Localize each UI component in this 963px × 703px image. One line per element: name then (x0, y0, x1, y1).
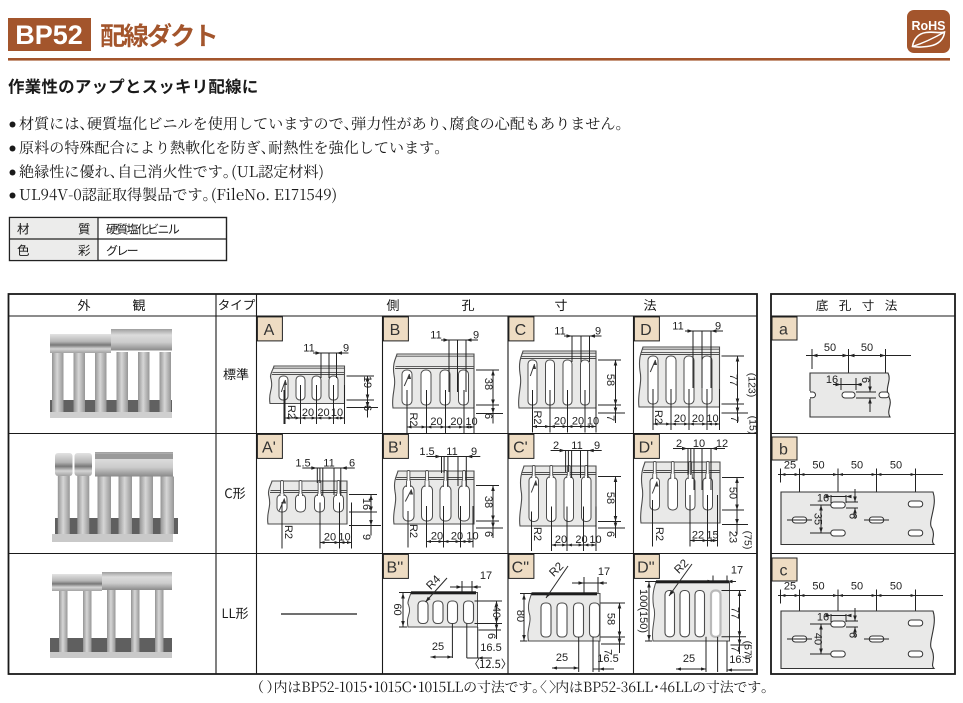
svg-text:6: 6 (485, 633, 497, 639)
svg-text:16.5: 16.5 (597, 653, 618, 665)
svg-text:B: B (390, 322, 401, 339)
svg-text:16: 16 (817, 612, 829, 624)
svg-text:a: a (779, 322, 788, 339)
svg-text:6: 6 (482, 531, 494, 537)
svg-text:50: 50 (861, 342, 873, 354)
svg-text:19: 19 (361, 376, 373, 388)
svg-text:B': B' (388, 439, 402, 456)
svg-text:17: 17 (731, 565, 743, 577)
svg-text:6: 6 (847, 513, 859, 519)
svg-text:25: 25 (556, 652, 568, 664)
svg-text:B'': B'' (387, 559, 404, 576)
svg-text:50: 50 (812, 581, 824, 593)
svg-text:40: 40 (812, 633, 824, 645)
svg-text:7: 7 (729, 646, 741, 652)
svg-text:11: 11 (303, 343, 314, 355)
svg-text:50: 50 (890, 460, 902, 472)
svg-text:C'': C'' (512, 559, 530, 576)
svg-text:6: 6 (482, 413, 494, 419)
svg-text:BP52: BP52 (15, 20, 83, 50)
svg-text:77: 77 (727, 374, 739, 386)
svg-text:7: 7 (728, 416, 740, 422)
svg-text:50: 50 (824, 342, 836, 354)
svg-text:17: 17 (480, 570, 492, 582)
svg-text:11: 11 (554, 326, 565, 338)
svg-text:58: 58 (604, 374, 616, 386)
svg-text:9: 9 (360, 534, 372, 540)
svg-text:6: 6 (859, 377, 871, 383)
svg-text:16: 16 (817, 493, 829, 505)
svg-text:50: 50 (812, 460, 824, 472)
svg-text:R2: R2 (407, 412, 419, 426)
svg-text:38: 38 (482, 378, 494, 390)
svg-text:100(150): 100(150) (637, 589, 649, 633)
svg-text:50: 50 (727, 487, 739, 499)
svg-text:17: 17 (598, 566, 610, 578)
svg-text:16.5: 16.5 (480, 642, 501, 654)
svg-text:(75): (75) (742, 531, 754, 550)
svg-text:50: 50 (890, 581, 902, 593)
svg-text:A': A' (262, 439, 276, 456)
svg-text:(15): (15) (747, 416, 759, 435)
svg-text:RoHS: RoHS (911, 19, 945, 33)
svg-text:C: C (515, 322, 527, 339)
svg-text:6: 6 (604, 531, 616, 537)
svg-text:c: c (780, 563, 788, 580)
svg-text:50: 50 (851, 581, 863, 593)
svg-text:R2: R2 (407, 524, 419, 538)
svg-text:7: 7 (604, 415, 616, 421)
svg-text:60: 60 (391, 603, 403, 615)
svg-text:A: A (264, 322, 275, 339)
svg-text:(57): (57) (742, 641, 754, 660)
svg-text:25: 25 (432, 641, 444, 653)
svg-text:(123): (123) (746, 373, 758, 398)
svg-text:C': C' (513, 439, 528, 456)
svg-text:25: 25 (683, 653, 695, 665)
svg-text:77: 77 (729, 607, 741, 619)
svg-text:R2: R2 (285, 405, 297, 419)
svg-text:58: 58 (604, 492, 616, 504)
svg-text:35: 35 (812, 513, 824, 525)
svg-text:15: 15 (706, 530, 718, 542)
svg-text:16: 16 (360, 498, 372, 510)
svg-text:R2: R2 (531, 410, 543, 424)
svg-text:R2: R2 (653, 527, 665, 541)
svg-text:50: 50 (851, 460, 863, 472)
svg-text:38: 38 (482, 496, 494, 508)
svg-text:R2: R2 (531, 527, 543, 541)
svg-text:25: 25 (784, 460, 796, 472)
svg-text:20: 20 (324, 532, 336, 544)
svg-text:D: D (640, 322, 652, 339)
svg-text:23: 23 (727, 531, 739, 543)
svg-text:25: 25 (784, 581, 796, 593)
svg-text:D'': D'' (637, 559, 655, 576)
svg-text:D': D' (639, 439, 654, 456)
svg-text:20: 20 (555, 534, 567, 546)
svg-text:R2: R2 (282, 525, 294, 539)
svg-text:6: 6 (361, 405, 373, 411)
svg-text:11: 11 (672, 321, 683, 333)
svg-text:11: 11 (430, 330, 441, 342)
svg-text:58: 58 (605, 613, 617, 625)
svg-text:6: 6 (847, 632, 859, 638)
svg-text:b: b (779, 442, 788, 459)
svg-text:R2: R2 (652, 410, 664, 424)
